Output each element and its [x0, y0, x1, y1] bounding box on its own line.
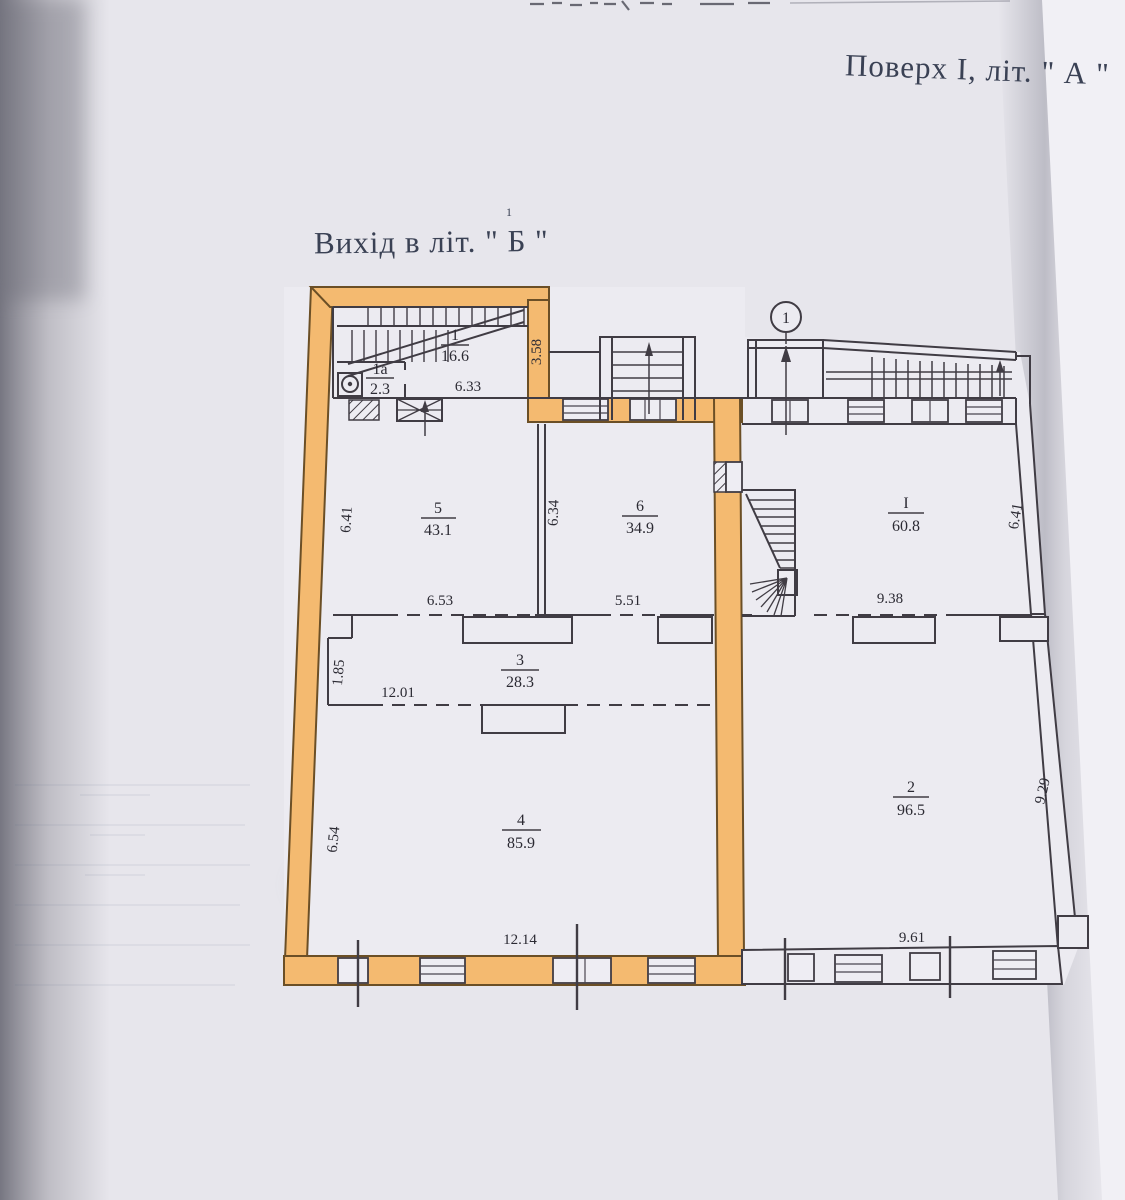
- room-I-area: 60.8: [892, 518, 920, 535]
- dim-room4-height: 6.54: [325, 825, 344, 853]
- room-3-number: 3: [516, 652, 524, 669]
- dim-roomI-width: 9.38: [877, 591, 903, 607]
- exit-label: Вихід в літ. " Б ": [314, 223, 549, 260]
- scanned-floor-plan-page: 1 Поверх І, літ. " А " Вихід в літ. " Б …: [0, 0, 1125, 1200]
- dim-room1-depth: 3.58: [529, 339, 545, 365]
- south-east-corner-jog: [1058, 916, 1088, 948]
- exit-label-superscript: 1: [506, 205, 512, 219]
- dim-room6-height: 6.34: [546, 499, 563, 526]
- pilaster: [658, 617, 712, 643]
- room-2-number: 2: [907, 779, 915, 796]
- dim-room1-width: 6.33: [455, 379, 481, 395]
- entrance-marker: 1: [771, 302, 801, 332]
- floor-plan-drawing: 1 Поверх І, літ. " А " Вихід в літ. " Б …: [0, 0, 1125, 1200]
- dim-room5-width: 6.53: [427, 593, 453, 609]
- dim-room5-height: 6.41: [338, 506, 356, 533]
- dim-room6-width: 5.51: [615, 593, 641, 609]
- room-1-number: 1: [451, 327, 459, 344]
- room-5-area: 43.1: [424, 522, 452, 539]
- entrance-marker-number: 1: [782, 310, 790, 327]
- dim-room4-width: 12.14: [503, 932, 537, 948]
- room-2-area: 96.5: [897, 802, 925, 819]
- room-5-number: 5: [434, 500, 442, 517]
- room-I-number: І: [903, 495, 908, 512]
- room-3-area: 28.3: [506, 674, 534, 691]
- dim-room2-width: 9.61: [899, 930, 925, 946]
- highlight-top-wall: [311, 287, 549, 307]
- chimney-hatch: [714, 462, 726, 492]
- pilaster: [1000, 617, 1048, 641]
- room-1-area: 16.6: [441, 348, 469, 365]
- room-1a-area: 2.3: [370, 381, 390, 398]
- door-to-stair: [726, 462, 742, 492]
- pilaster: [463, 617, 572, 643]
- room-1a-number: 1а: [372, 361, 387, 378]
- room-6-number: 6: [636, 498, 644, 515]
- room-6-area: 34.9: [626, 520, 654, 537]
- dim-corridor-niche: 1.85: [330, 659, 348, 687]
- pilaster: [853, 617, 935, 643]
- left-top-shadow: [0, 0, 85, 300]
- room-4-number: 4: [517, 812, 525, 829]
- dim-corridor-width: 12.01: [381, 685, 415, 701]
- room-4-area: 85.9: [507, 835, 535, 852]
- pilaster: [482, 705, 565, 733]
